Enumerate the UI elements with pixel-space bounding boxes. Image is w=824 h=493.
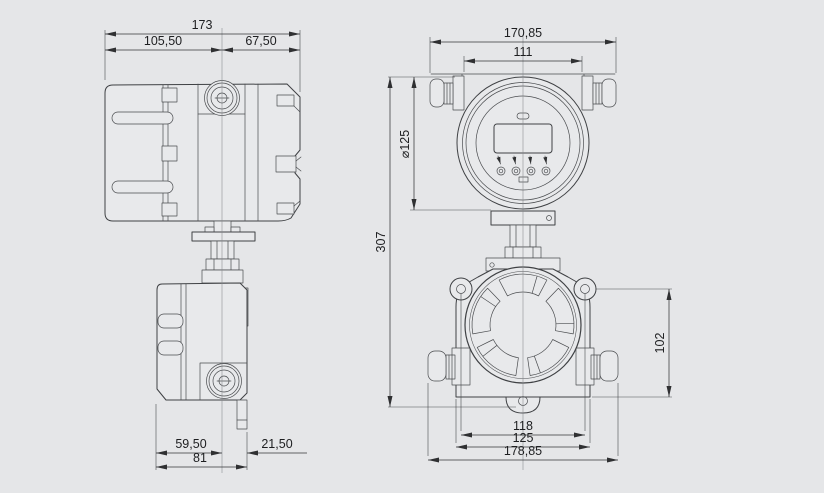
cover-rib-notch bbox=[162, 203, 177, 216]
front-view: 170,85 111 307 ⌀125 102 118 125 178,85 bbox=[374, 26, 672, 470]
dim-label-bracket-height: 102 bbox=[653, 333, 667, 354]
technical-drawing: 173 105,50 67,50 59,50 21,50 81 bbox=[0, 0, 824, 493]
cable-gland-left-icon bbox=[428, 351, 455, 381]
dim-label-bottom-right: 21,50 bbox=[261, 437, 292, 451]
side-view-neck bbox=[192, 221, 255, 283]
dim-label-top-inner: 111 bbox=[513, 45, 532, 59]
dim-label-bottom-total: 81 bbox=[193, 451, 207, 465]
cover-rib-notch bbox=[162, 146, 177, 161]
cover-rib-notch bbox=[162, 88, 177, 102]
front-cover-notch bbox=[276, 156, 296, 172]
housing-bottom-tab bbox=[237, 400, 247, 429]
dim-label-bottom-total: 178,85 bbox=[504, 444, 542, 458]
drawing-canvas: 173 105,50 67,50 59,50 21,50 81 bbox=[0, 0, 824, 493]
side-view-sensor-housing bbox=[157, 283, 248, 429]
dim-label-top-total: 170,85 bbox=[504, 26, 542, 40]
cable-gland-right-icon bbox=[582, 76, 616, 110]
side-view: 173 105,50 67,50 59,50 21,50 81 bbox=[105, 18, 307, 473]
dim-label-cap-side: 105,50 bbox=[144, 34, 182, 48]
dim-label-display-side: 67,50 bbox=[245, 34, 276, 48]
side-view-transmitter-housing bbox=[105, 81, 301, 222]
front-cover-notch bbox=[277, 203, 294, 214]
dim-label-total-height: 307 bbox=[374, 232, 388, 253]
front-cover-notch bbox=[277, 95, 294, 106]
cover-grip-rib bbox=[112, 181, 173, 193]
mounting-flange bbox=[192, 232, 255, 241]
cable-gland-bottom-icon bbox=[207, 364, 242, 399]
dim-label-bracket-width: 125 bbox=[513, 431, 534, 445]
cable-gland-right-icon bbox=[591, 351, 618, 381]
cover-grip-rib bbox=[112, 112, 173, 124]
housing-body-outline bbox=[105, 84, 300, 221]
dim-label-bottom-left: 59,50 bbox=[175, 437, 206, 451]
cover-grip-rib bbox=[158, 341, 183, 355]
cable-gland-left-icon bbox=[430, 76, 464, 110]
dim-label-total-width: 173 bbox=[192, 18, 213, 32]
cover-grip-rib bbox=[158, 314, 183, 328]
dim-label-head-diameter: ⌀125 bbox=[398, 130, 412, 158]
